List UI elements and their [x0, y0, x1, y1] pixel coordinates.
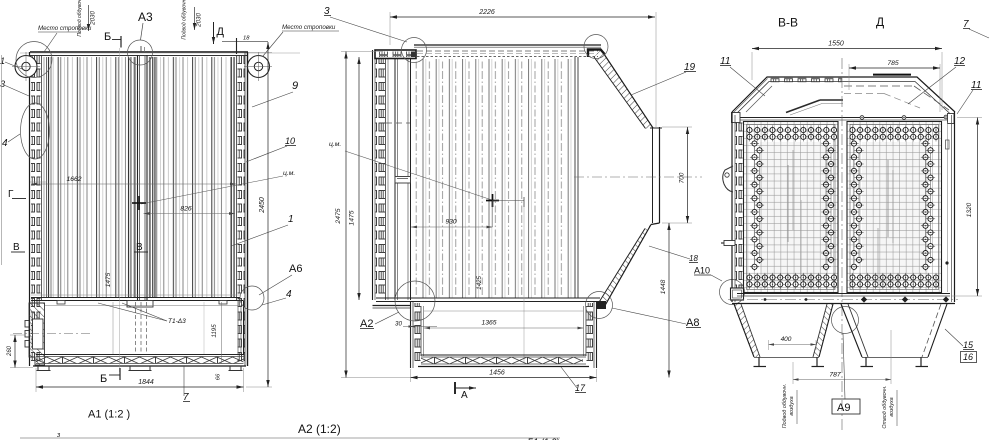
svg-text:787: 787 — [829, 372, 841, 379]
svg-text:1844: 1844 — [138, 379, 154, 386]
svg-text:2226: 2226 — [478, 9, 495, 16]
svg-text:Место строповки: Место строповки — [38, 25, 92, 32]
svg-text:2030: 2030 — [196, 13, 203, 28]
svg-text:260: 260 — [7, 345, 13, 357]
svg-text:2475: 2475 — [335, 208, 342, 224]
svg-text:1: 1 — [288, 214, 294, 225]
svg-text:1: 1 — [0, 56, 5, 66]
svg-text:В-В: В-В — [778, 16, 798, 30]
svg-text:воздуха: воздуха — [889, 397, 895, 416]
svg-text:Отвод обдувочн.: Отвод обдувочн. — [882, 385, 888, 428]
svg-text:700: 700 — [679, 172, 686, 183]
svg-text:А9: А9 — [837, 402, 850, 414]
svg-text:826: 826 — [180, 206, 192, 213]
svg-text:930: 930 — [445, 219, 457, 226]
svg-text:ц.м.: ц.м. — [329, 141, 341, 148]
svg-text:1550: 1550 — [828, 41, 844, 48]
svg-text:Т1-Δ3: Т1-Δ3 — [168, 318, 186, 325]
svg-text:1195: 1195 — [211, 324, 218, 338]
svg-text:1320: 1320 — [966, 202, 973, 217]
svg-text:А2 (1:2): А2 (1:2) — [298, 422, 341, 436]
svg-text:А1 (1:2 ): А1 (1:2 ) — [88, 409, 130, 421]
svg-text:1475: 1475 — [105, 272, 112, 287]
svg-text:А6: А6 — [289, 263, 302, 275]
svg-text:В: В — [13, 242, 20, 253]
svg-text:Подвод обдувочн.: Подвод обдувочн. — [77, 0, 83, 37]
svg-text:А3: А3 — [138, 10, 153, 24]
svg-text:785: 785 — [887, 60, 899, 67]
svg-text:А: А — [461, 390, 468, 401]
svg-text:Б: Б — [100, 373, 107, 385]
svg-text:66: 66 — [216, 373, 222, 380]
svg-text:400: 400 — [781, 336, 792, 343]
svg-text:ц.м.: ц.м. — [283, 170, 295, 177]
svg-text:1448: 1448 — [660, 279, 667, 294]
svg-text:16: 16 — [963, 352, 973, 362]
svg-text:Место строповки: Место строповки — [282, 24, 336, 31]
svg-text:9: 9 — [292, 80, 298, 92]
svg-text:1425: 1425 — [476, 276, 483, 290]
svg-text:Д: Д — [217, 26, 225, 38]
svg-text:1456: 1456 — [489, 370, 505, 377]
svg-text:18: 18 — [689, 254, 698, 263]
svg-text:15: 15 — [963, 340, 974, 350]
svg-text:А10: А10 — [694, 266, 710, 276]
svg-text:Д: Д — [876, 15, 884, 29]
svg-text:2450: 2450 — [259, 197, 266, 214]
svg-text:30: 30 — [395, 321, 402, 328]
svg-text:з: з — [56, 432, 61, 439]
svg-text:Б: Б — [104, 31, 111, 43]
svg-text:18: 18 — [243, 36, 250, 42]
svg-text:1475: 1475 — [349, 210, 356, 225]
svg-text:1662: 1662 — [66, 176, 81, 183]
svg-text:3: 3 — [0, 79, 5, 89]
svg-text:В: В — [136, 242, 143, 253]
svg-text:Подвод обдувочн.: Подвод обдувочн. — [782, 384, 788, 428]
svg-text:Подвод обдувочн.: Подвод обдувочн. — [182, 0, 188, 40]
svg-text:воздуха: воздуха — [789, 396, 795, 415]
svg-text:4: 4 — [2, 138, 8, 149]
svg-text:4: 4 — [286, 289, 292, 300]
svg-text:1365: 1365 — [481, 320, 496, 327]
svg-text:10: 10 — [285, 136, 295, 146]
svg-text:2030: 2030 — [90, 11, 97, 26]
